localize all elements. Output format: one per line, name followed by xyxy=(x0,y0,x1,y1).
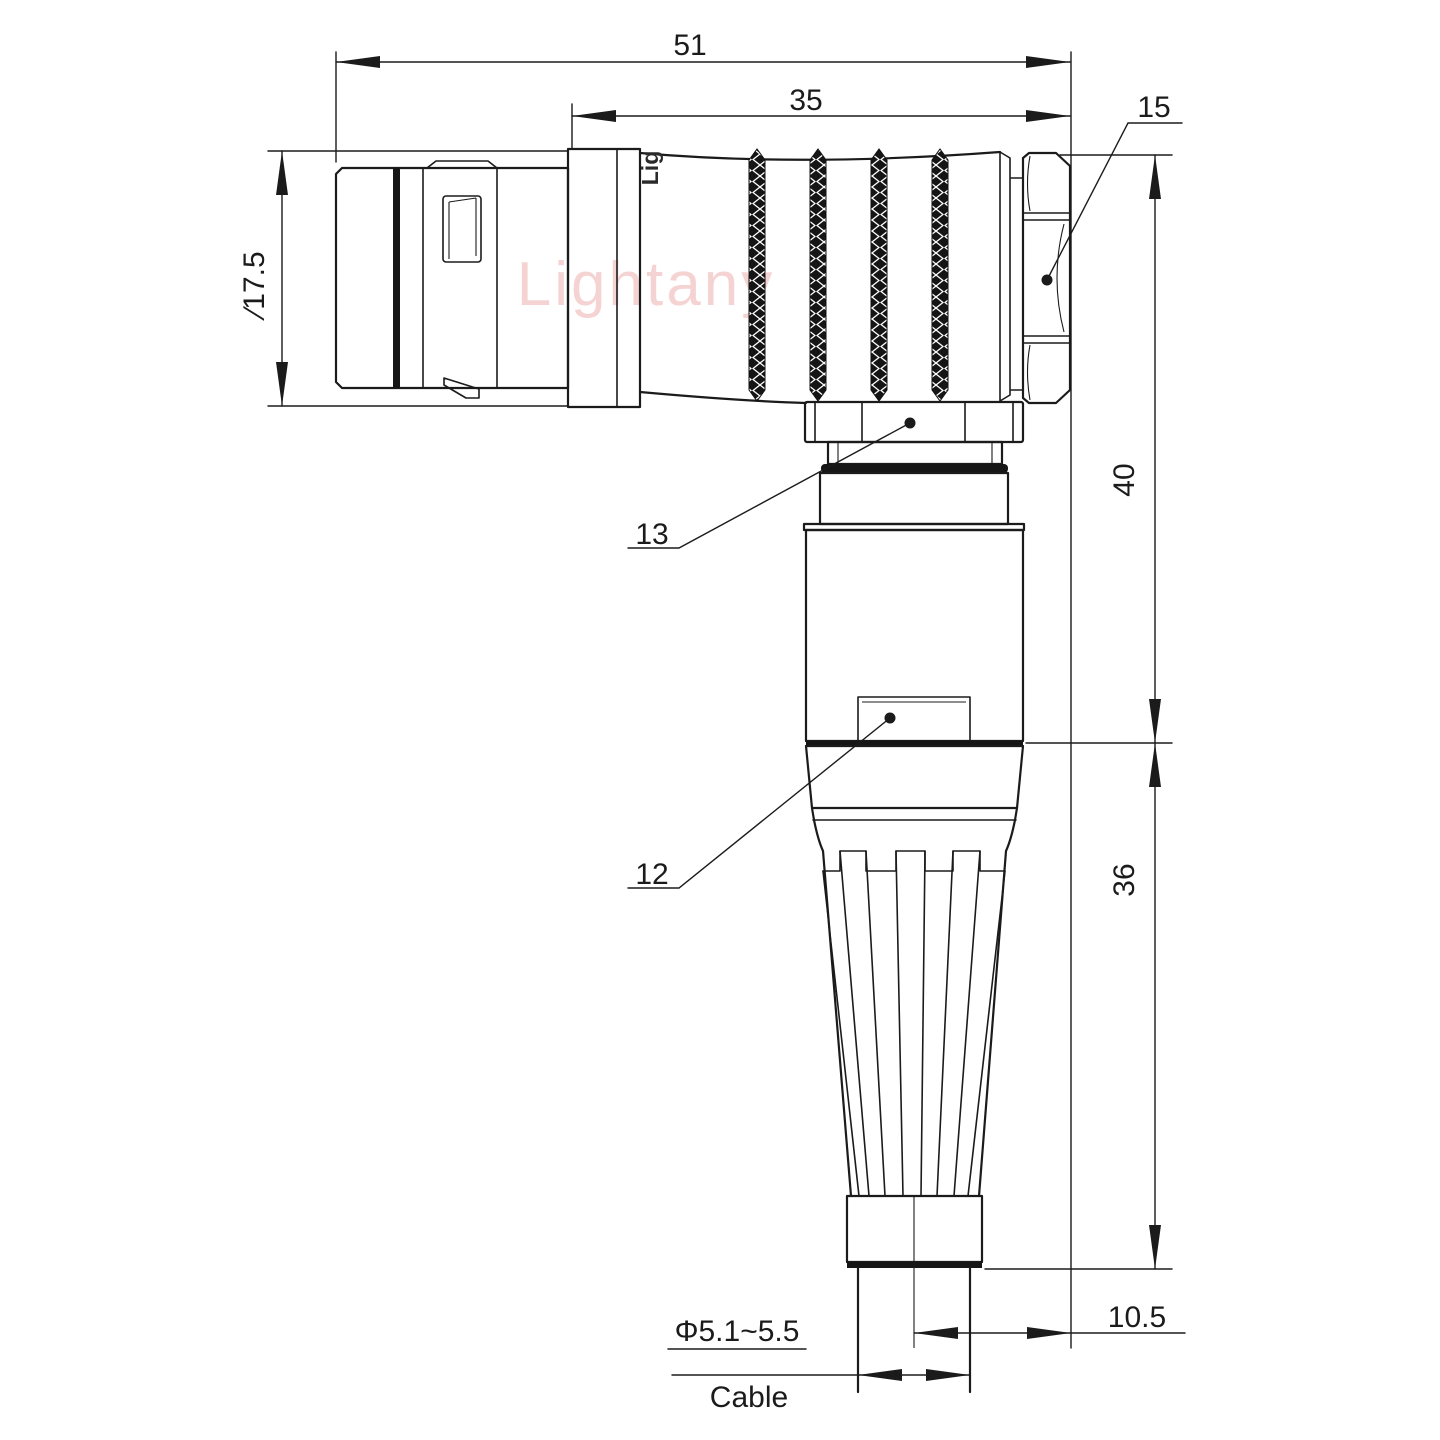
dim-offset-label: 10.5 xyxy=(1108,1301,1166,1334)
leader-dot-12 xyxy=(885,713,896,724)
ref-15-label: 15 xyxy=(1137,91,1170,124)
main-housing xyxy=(806,530,1023,746)
boot-ribs xyxy=(823,851,1005,1196)
drawing-canvas: Lightany Lig xyxy=(0,0,1440,1440)
knurl-strip xyxy=(810,149,826,401)
knurl-strip xyxy=(932,149,948,401)
o-ring-groove xyxy=(821,464,1008,473)
leader-dot-13 xyxy=(905,418,916,429)
upper-cylinder xyxy=(804,473,1024,530)
sleeve-dark-band xyxy=(393,168,400,388)
leader-lines xyxy=(628,123,1182,888)
strain-relief-boot xyxy=(806,746,1023,1268)
dim-height-upper-label: 40 xyxy=(1108,463,1141,496)
ref-12-label: 12 xyxy=(635,858,668,891)
dim-height-boot-label: 36 xyxy=(1108,863,1141,896)
dim-body-length-label: 35 xyxy=(789,84,822,117)
neck-ring xyxy=(821,442,1008,473)
dim-plug-diameter-label: ∕17.5 xyxy=(238,251,271,321)
cable-caption-label: Cable xyxy=(710,1381,788,1414)
leader-dot-15 xyxy=(1042,275,1053,286)
dim-cable-diameter-label: Φ5.1~5.5 xyxy=(675,1315,800,1348)
dim-overall-length-label: 51 xyxy=(673,29,706,62)
knurl-strip xyxy=(871,149,887,401)
barrel-engraving-text: Lig xyxy=(637,151,663,186)
watermark-text: Lightany xyxy=(517,250,775,319)
knurl-strip xyxy=(749,149,765,401)
ref-13-label: 13 xyxy=(635,518,668,551)
connector-technical-drawing: Lightany Lig xyxy=(0,0,1440,1440)
housing-window xyxy=(858,697,970,741)
